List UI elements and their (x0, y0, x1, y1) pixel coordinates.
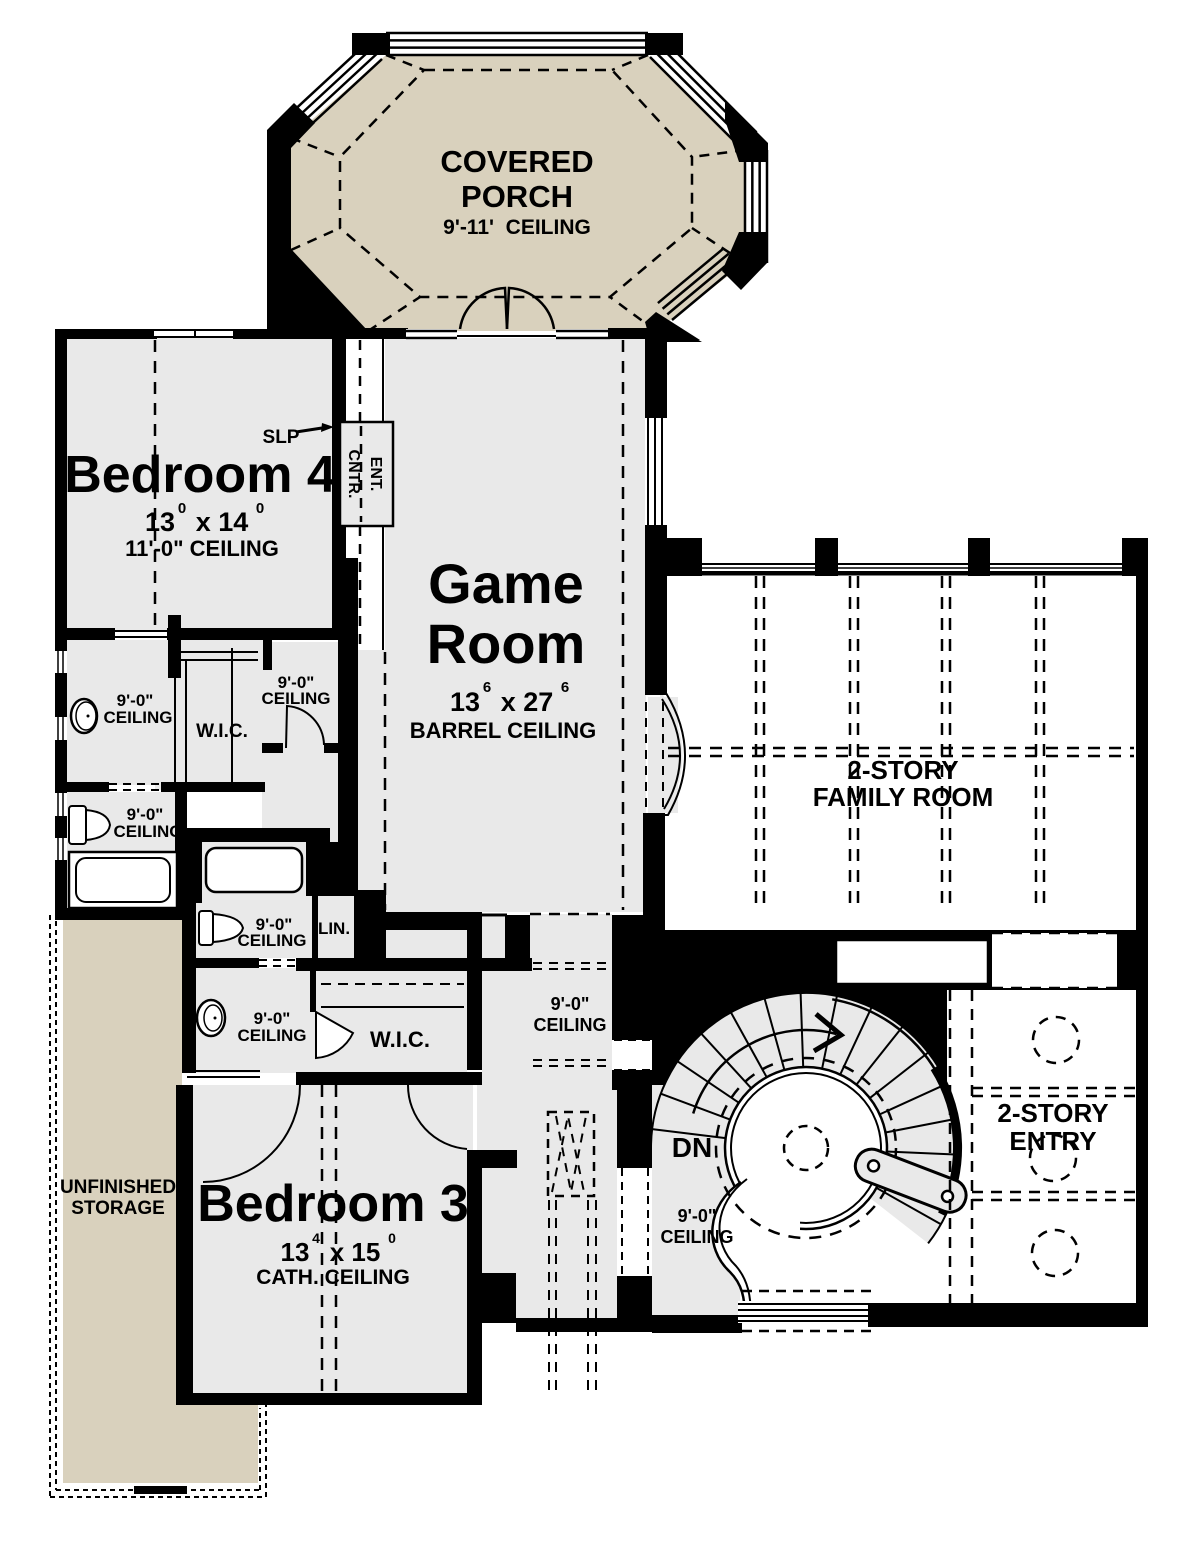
svg-text:Room: Room (427, 612, 586, 675)
svg-text:9'-0": 9'-0" (678, 1206, 717, 1226)
svg-text:CEILING: CEILING (104, 708, 173, 727)
svg-text:0: 0 (256, 500, 264, 517)
svg-text:LIN.: LIN. (318, 919, 350, 938)
svg-text:0: 0 (388, 1230, 396, 1246)
svg-text:COVERED: COVERED (440, 144, 593, 179)
svg-text:6: 6 (561, 679, 569, 696)
svg-text:4: 4 (312, 1230, 320, 1246)
svg-text:9'-0": 9'-0" (551, 994, 590, 1014)
svg-text:13: 13 (145, 507, 175, 537)
svg-text:STORAGE: STORAGE (71, 1198, 165, 1219)
svg-text:Bedroom 3: Bedroom 3 (197, 1175, 469, 1233)
svg-text:SLP: SLP (263, 427, 300, 448)
svg-text:W.I.C.: W.I.C. (196, 721, 248, 742)
svg-text:FAMILY ROOM: FAMILY ROOM (813, 782, 994, 812)
svg-text:0: 0 (178, 500, 186, 517)
svg-text:6: 6 (483, 679, 491, 696)
svg-text:11'-0" CEILING: 11'-0" CEILING (125, 536, 279, 561)
svg-text:PORCH: PORCH (461, 179, 573, 214)
svg-text:CEILING: CEILING (238, 1026, 307, 1045)
svg-text:Bedroom 4: Bedroom 4 (64, 446, 336, 504)
svg-text:BARREL CEILING: BARREL CEILING (410, 718, 597, 743)
svg-text:x 14: x 14 (196, 507, 249, 537)
svg-text:DN: DN (672, 1132, 712, 1163)
svg-text:CEILING: CEILING (238, 931, 307, 950)
svg-text:x 27: x 27 (501, 687, 554, 717)
svg-text:ENT.: ENT. (367, 457, 384, 492)
svg-text:W.I.C.: W.I.C. (370, 1027, 430, 1052)
svg-text:x 15: x 15 (330, 1237, 381, 1267)
svg-text:13: 13 (450, 687, 480, 717)
svg-text:CEILING: CEILING (533, 1015, 606, 1035)
svg-text:ENTRY: ENTRY (1009, 1126, 1096, 1156)
svg-text:CATH. CEILING: CATH. CEILING (256, 1266, 410, 1289)
svg-text:CEILING: CEILING (660, 1227, 733, 1247)
svg-text:UNFINISHED: UNFINISHED (60, 1177, 176, 1198)
svg-text:CEILING: CEILING (262, 689, 331, 708)
svg-text:CEILING: CEILING (114, 822, 183, 841)
svg-text:9'-11' CEILING: 9'-11' CEILING (443, 216, 591, 239)
svg-text:CNTR.: CNTR. (345, 450, 362, 499)
svg-text:2-STORY: 2-STORY (997, 1098, 1108, 1128)
svg-text:13: 13 (281, 1237, 310, 1267)
svg-text:Game: Game (428, 552, 584, 615)
svg-text:2-STORY: 2-STORY (847, 755, 958, 785)
